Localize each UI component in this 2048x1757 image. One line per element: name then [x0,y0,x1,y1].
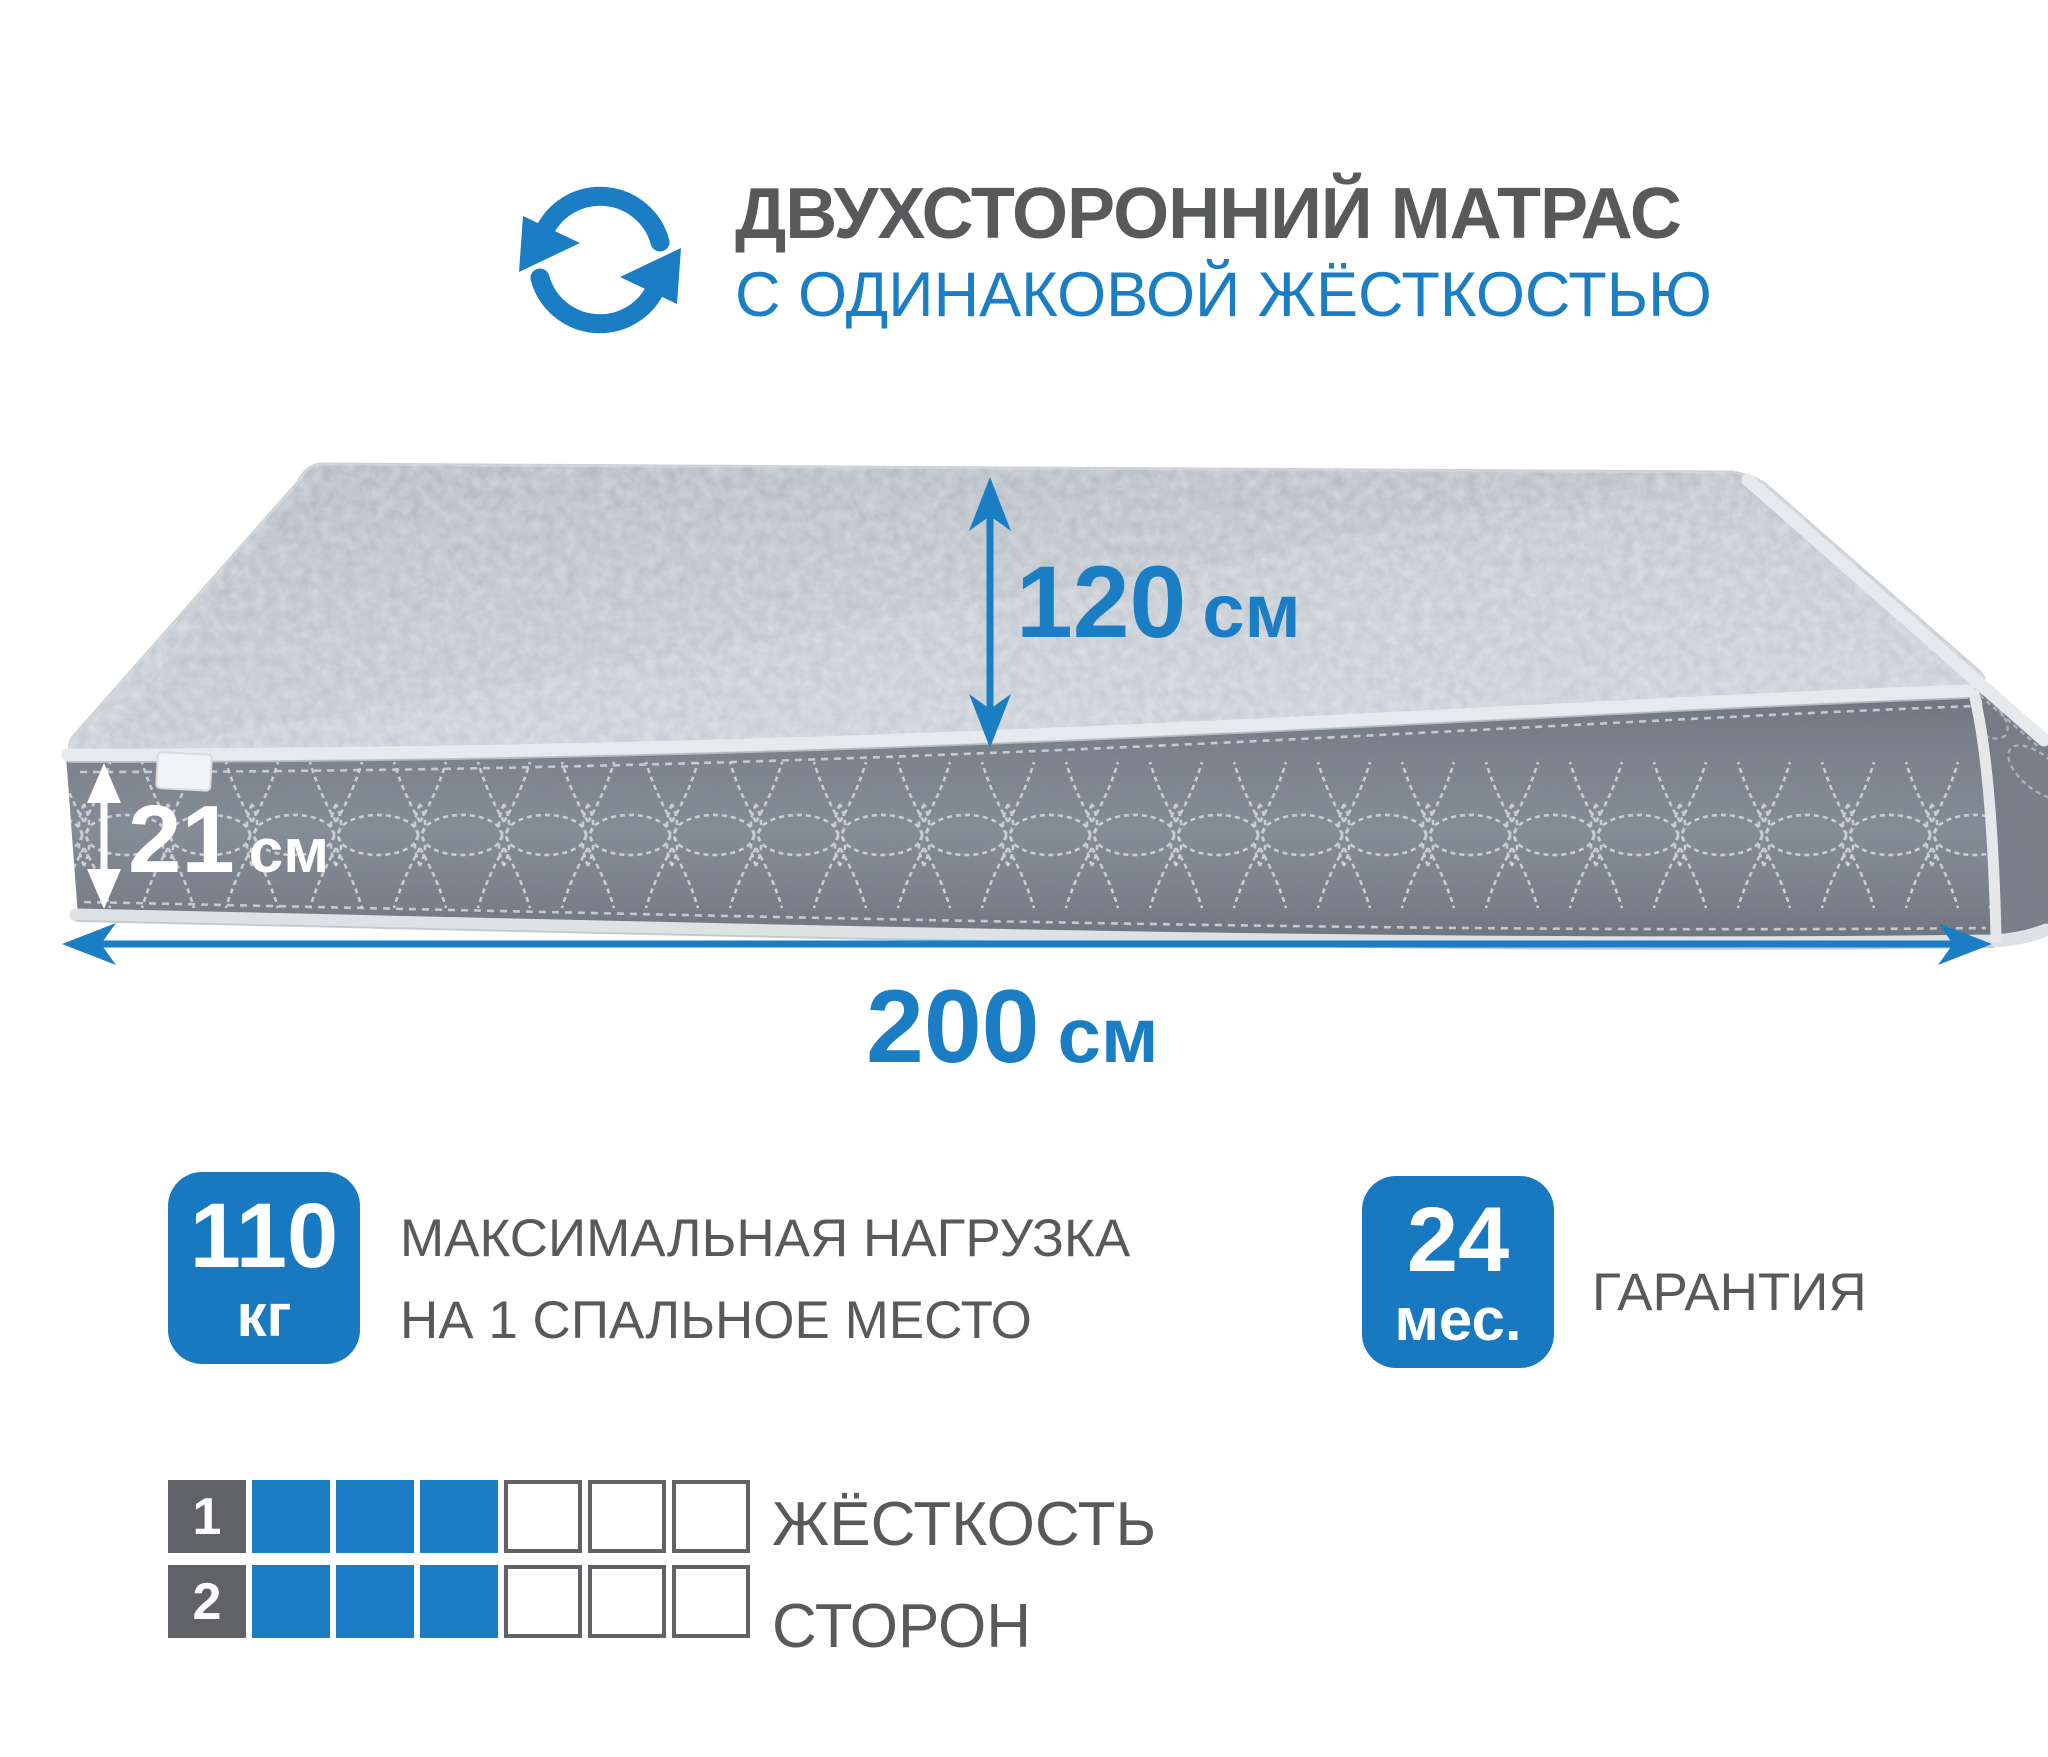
hardness-cell-empty [588,1480,666,1553]
mattress-illustration: 120см 21см 200см [0,0,2048,1130]
hardness-cell-filled [336,1565,414,1638]
hardness-cell-empty [672,1480,750,1553]
max-load-label-line1: МАКСИМАЛЬНАЯ НАГРУЗКА [400,1198,1130,1280]
hardness-cell-filled [252,1480,330,1553]
warranty-badge: 24 мес. [1362,1176,1554,1368]
hardness-label-line1: ЖЁСТКОСТЬ [772,1494,1156,1556]
max-load-label-line2: НА 1 СПАЛЬНОЕ МЕСТО [400,1280,1130,1362]
hardness-row-side-2: 2 [168,1565,750,1638]
warranty-unit: мес. [1362,1290,1554,1350]
hardness-cell-empty [504,1480,582,1553]
side-number-tile: 1 [168,1480,246,1553]
hardness-cell-empty [504,1565,582,1638]
max-load-unit: кг [168,1286,360,1346]
hardness-cell-filled [252,1565,330,1638]
hardness-cell-filled [420,1565,498,1638]
hardness-scale: 12 [168,1480,750,1650]
hardness-row-side-1: 1 [168,1480,750,1553]
quilt-stitch-pattern [40,758,2000,910]
max-load-value: 110 [168,1190,360,1282]
max-load-label: МАКСИМАЛЬНАЯ НАГРУЗКА НА 1 СПАЛЬНОЕ МЕСТ… [400,1198,1130,1362]
length-dimension-label: 200см [866,969,1159,1085]
hardness-cell-filled [336,1480,414,1553]
hardness-cell-empty [588,1565,666,1638]
hardness-scale-label: ЖЁСТКОСТЬ СТОРОН [772,1482,1156,1658]
mattress-tag [156,752,212,791]
hardness-cell-filled [420,1480,498,1553]
hardness-cell-empty [672,1565,750,1638]
side-number-tile: 2 [168,1565,246,1638]
warranty-label: ГАРАНТИЯ [1592,1252,1867,1334]
hardness-label-line2: СТОРОН [772,1596,1156,1658]
warranty-value: 24 [1362,1194,1554,1286]
max-load-badge: 110 кг [168,1172,360,1364]
infographic-page: ДВУХСТОРОННИЙ МАТРАС С ОДИНАКОВОЙ ЖЁСТКО… [0,0,2048,1757]
